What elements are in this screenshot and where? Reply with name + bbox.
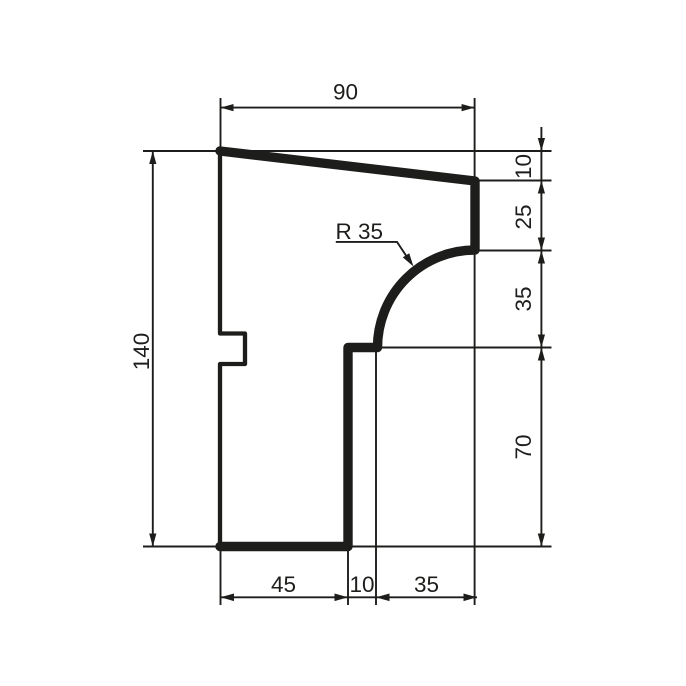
svg-text:35: 35 xyxy=(414,572,439,597)
svg-text:70: 70 xyxy=(511,434,536,459)
svg-text:25: 25 xyxy=(511,204,536,229)
svg-text:140: 140 xyxy=(129,333,154,371)
svg-text:10: 10 xyxy=(511,154,536,179)
svg-text:R 35: R 35 xyxy=(336,219,384,244)
svg-text:90: 90 xyxy=(333,80,358,105)
svg-text:35: 35 xyxy=(511,286,536,311)
svg-text:10: 10 xyxy=(349,572,374,597)
svg-text:45: 45 xyxy=(271,572,296,597)
